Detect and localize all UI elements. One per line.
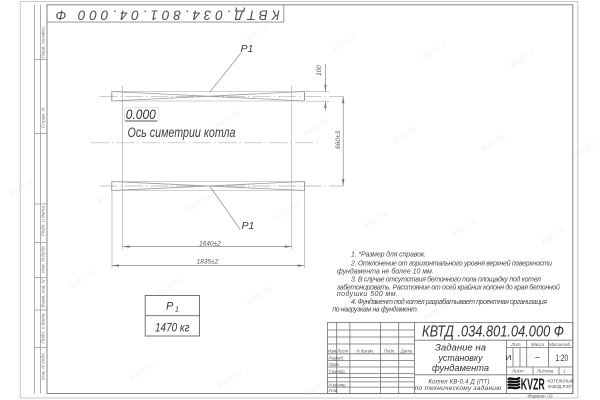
svg-text:N докум.: N докум. bbox=[357, 349, 374, 354]
svg-text:Лист: Лист bbox=[511, 369, 524, 374]
svg-text:P1: P1 bbox=[241, 43, 254, 55]
svg-text:1: 1 bbox=[175, 307, 179, 314]
svg-text:по техническому заданию: по техническому заданию bbox=[415, 384, 502, 392]
svg-text:КВТД .034.801.04.000 Ф: КВТД .034.801.04.000 Ф bbox=[422, 323, 564, 340]
svg-text:Дата: Дата bbox=[400, 349, 413, 354]
svg-text:И: И bbox=[505, 355, 511, 362]
svg-text:Взам. инв. N: Взам. инв. N bbox=[41, 279, 47, 307]
svg-text:Лит.: Лит. bbox=[510, 342, 522, 347]
svg-text:P1: P1 bbox=[242, 220, 255, 232]
svg-text:Подп.: Подп. bbox=[384, 349, 395, 354]
svg-text:Подп. и дата: Подп. и дата bbox=[41, 206, 47, 236]
svg-text:1. *Размер для справок.: 1. *Размер для справок. bbox=[351, 250, 426, 258]
svg-text:Масса: Масса bbox=[531, 342, 545, 347]
svg-text:0.000: 0.000 bbox=[126, 106, 156, 122]
svg-text:Утв.: Утв. bbox=[329, 388, 339, 393]
svg-text:Инв. N подл.: Инв. N подл. bbox=[41, 352, 47, 380]
svg-text:4. Фундамент под котел разраба: 4. Фундамент под котел разрабатывает про… bbox=[351, 298, 547, 306]
svg-text:установку: установку bbox=[438, 353, 484, 364]
svg-text:Т.контр.: Т.контр. bbox=[329, 369, 346, 374]
svg-text:Справ. N: Справ. N bbox=[41, 107, 47, 128]
svg-text:1:20: 1:20 bbox=[556, 353, 569, 363]
svg-text:100: 100 bbox=[316, 65, 323, 76]
svg-text:Перв. примен.: Перв. примен. bbox=[41, 26, 47, 58]
svg-text:2. Отклонение от горизонтально: 2. Отклонение от горизонтального уровня … bbox=[350, 260, 552, 268]
svg-text:фундамента не более 10 мм.: фундамента не более 10 мм. bbox=[337, 268, 434, 276]
svg-text:1835±2: 1835±2 bbox=[197, 259, 219, 266]
svg-text:Подп. и дата: Подп. и дата bbox=[41, 313, 47, 343]
svg-text:Изм.Лист: Изм.Лист bbox=[328, 349, 349, 354]
svg-text:Инв. N дубл.: Инв. N дубл. bbox=[41, 245, 47, 273]
svg-text:KVZR: KVZR bbox=[521, 376, 545, 393]
svg-text:Н.контр.: Н.контр. bbox=[329, 382, 347, 387]
svg-text:P: P bbox=[166, 301, 174, 313]
svg-text:3. В случае отсутствия бетонно: 3. В случае отсутствия бетонного пола пл… bbox=[351, 275, 541, 283]
svg-text:Пров.: Пров. bbox=[329, 362, 340, 367]
svg-text:1640±2: 1640±2 bbox=[199, 241, 221, 248]
svg-text:Формат А3: Формат А3 bbox=[527, 394, 553, 399]
svg-text:Масштаб: Масштаб bbox=[549, 342, 570, 347]
svg-text:фундамента: фундамента bbox=[432, 363, 489, 374]
svg-text:Разраб.: Разраб. bbox=[329, 355, 345, 360]
svg-text:подушки 500 мм.: подушки 500 мм. bbox=[337, 290, 398, 298]
svg-text:Ось симетрии котла: Ось симетрии котла bbox=[128, 125, 236, 140]
svg-text:1470 кг: 1470 кг bbox=[155, 321, 190, 335]
svg-text:–: – bbox=[534, 353, 540, 362]
svg-text:660±3: 660±3 bbox=[335, 131, 342, 149]
svg-text:Листов: Листов bbox=[536, 369, 554, 374]
svg-text:забетонировать. Расстояние от: забетонировать. Расстояние от осей крайн… bbox=[336, 283, 560, 291]
svg-text:КОТЕЛЬНЫЙ: КОТЕЛЬНЫЙ bbox=[548, 379, 574, 384]
svg-text:по нагрузкам на фундамент.: по нагрузкам на фундамент. bbox=[332, 306, 418, 314]
svg-text:ЗАВОД РЭП: ЗАВОД РЭП bbox=[548, 384, 572, 389]
